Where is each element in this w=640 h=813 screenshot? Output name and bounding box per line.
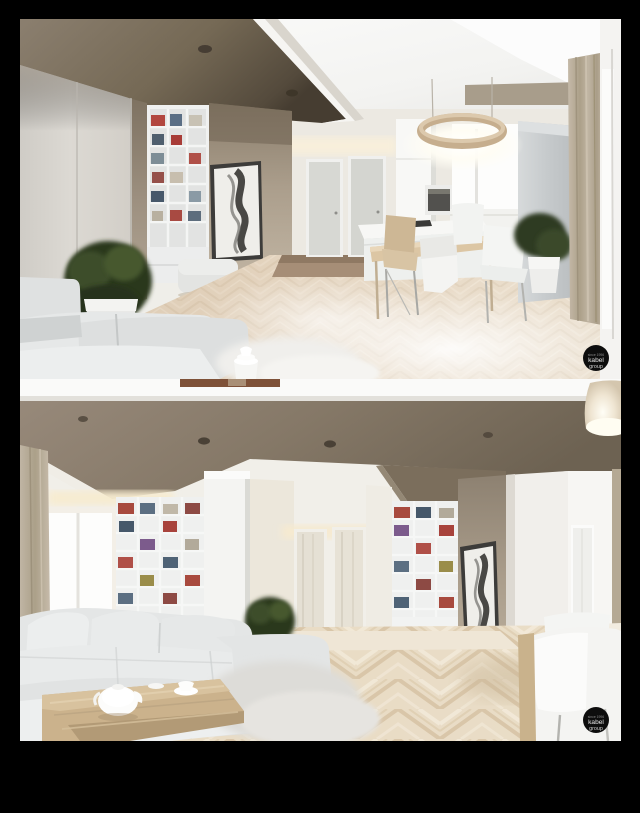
svg-text:group: group (589, 726, 603, 732)
svg-text:kabel: kabel (588, 357, 604, 364)
svg-text:kabel: kabel (588, 719, 604, 726)
svg-text:group: group (589, 364, 603, 370)
